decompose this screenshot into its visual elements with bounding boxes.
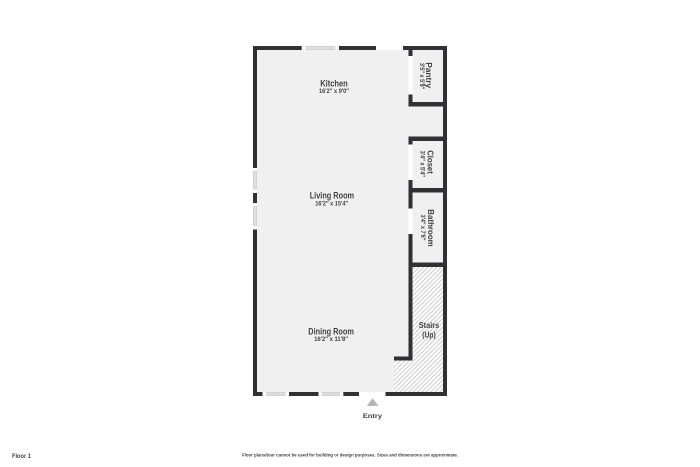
svg-text:(Up): (Up) — [422, 330, 436, 339]
svg-text:Floor 1: Floor 1 — [12, 453, 31, 460]
svg-text:Bathroom: Bathroom — [426, 209, 435, 246]
svg-text:16′2″ x 15′4″: 16′2″ x 15′4″ — [315, 201, 348, 208]
svg-text:Dining Room: Dining Room — [308, 326, 354, 336]
svg-text:Stairs: Stairs — [419, 321, 440, 330]
svg-text:Closet: Closet — [425, 150, 434, 174]
svg-text:Pantry: Pantry — [424, 62, 433, 89]
svg-text:3′5″ x 5′9″: 3′5″ x 5′9″ — [418, 63, 424, 90]
svg-text:Kitchen: Kitchen — [320, 78, 348, 88]
svg-text:3′4″ x 7′6″: 3′4″ x 7′6″ — [419, 215, 425, 241]
svg-text:Living Room: Living Room — [310, 191, 355, 201]
svg-text:16′2″ x 9′0″: 16′2″ x 9′0″ — [319, 88, 349, 95]
svg-text:3′4″ x 5′4″: 3′4″ x 5′4″ — [419, 151, 425, 177]
svg-text:16′2″ x 11′8″: 16′2″ x 11′8″ — [314, 336, 348, 343]
svg-text:Entry: Entry — [363, 413, 383, 420]
svg-text:Floor plans/tour cannot be use: Floor plans/tour cannot be used for buil… — [242, 452, 458, 458]
